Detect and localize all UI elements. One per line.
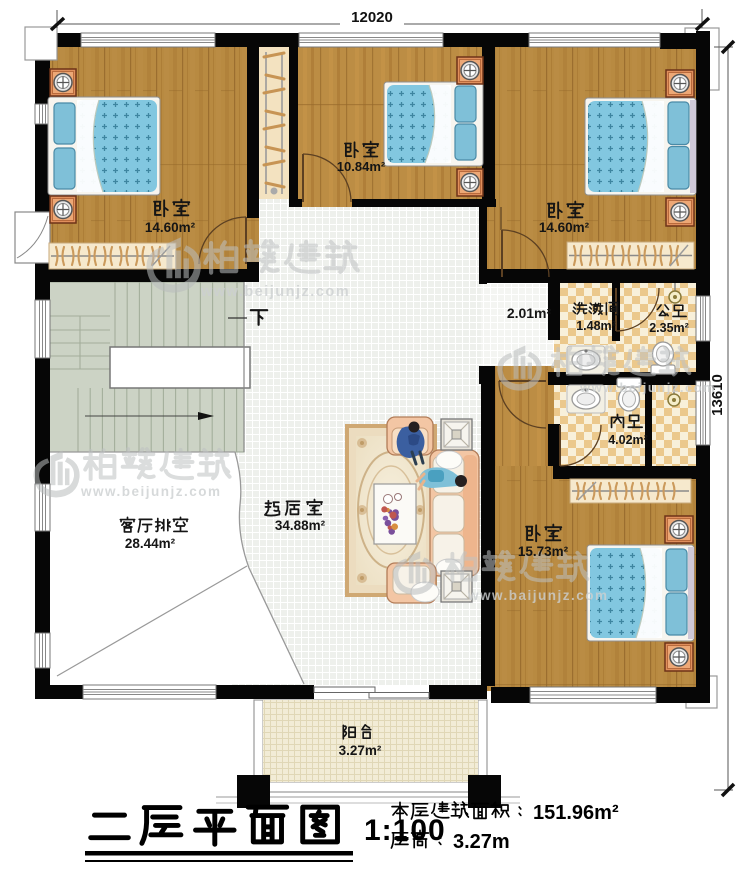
- svg-text:3.27m²: 3.27m²: [339, 743, 382, 758]
- svg-text:14.60m²: 14.60m²: [539, 220, 590, 235]
- svg-text:10.84m²: 10.84m²: [337, 159, 386, 174]
- svg-text:34.88m²: 34.88m²: [275, 518, 326, 533]
- svg-text:www.beijunjz.com: www.beijunjz.com: [200, 284, 350, 300]
- svg-text:14.60m²: 14.60m²: [145, 220, 196, 235]
- svg-text:2.35m²: 2.35m²: [649, 321, 689, 335]
- svg-text:www.baijunjz.com: www.baijunjz.com: [467, 588, 609, 603]
- svg-text:3.27m: 3.27m: [453, 831, 510, 853]
- svg-text:www.beijunjz.com: www.beijunjz.com: [579, 380, 716, 395]
- svg-text:151.96m²: 151.96m²: [533, 802, 619, 824]
- svg-text:4.02m²: 4.02m²: [608, 433, 648, 447]
- svg-text:2.01m²: 2.01m²: [507, 305, 552, 321]
- svg-text:15.73m²: 15.73m²: [518, 544, 569, 559]
- svg-text:12020: 12020: [351, 9, 393, 26]
- svg-text:1.48m²: 1.48m²: [576, 319, 616, 333]
- svg-text:1:100: 1:100: [364, 814, 446, 847]
- svg-text:www.beijunjz.com: www.beijunjz.com: [80, 484, 222, 499]
- svg-text:28.44m²: 28.44m²: [125, 536, 176, 551]
